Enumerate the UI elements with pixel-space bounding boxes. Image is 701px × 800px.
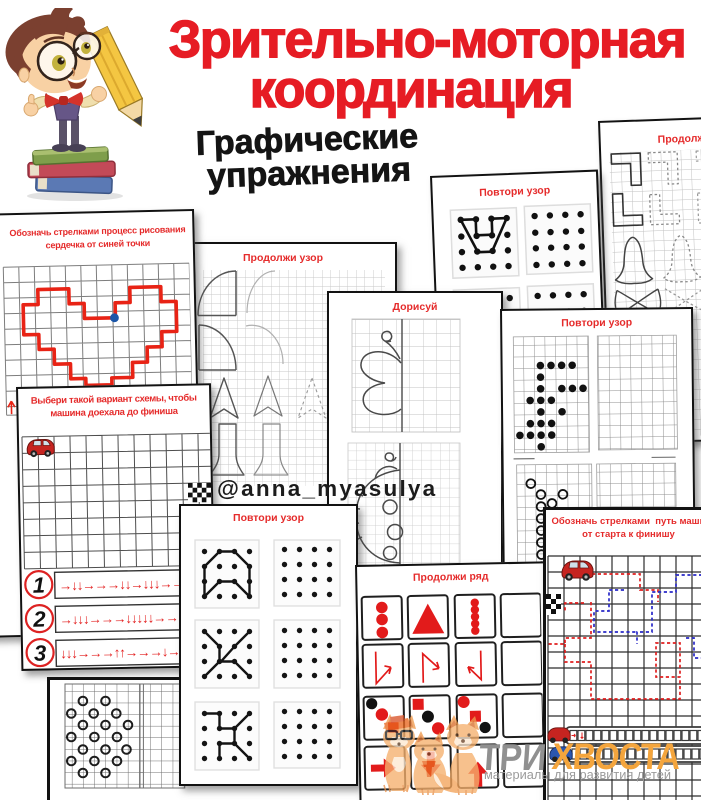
svg-text:2: 2: [32, 606, 46, 631]
svg-text:1: 1: [32, 572, 45, 597]
svg-text:3: 3: [34, 640, 47, 665]
